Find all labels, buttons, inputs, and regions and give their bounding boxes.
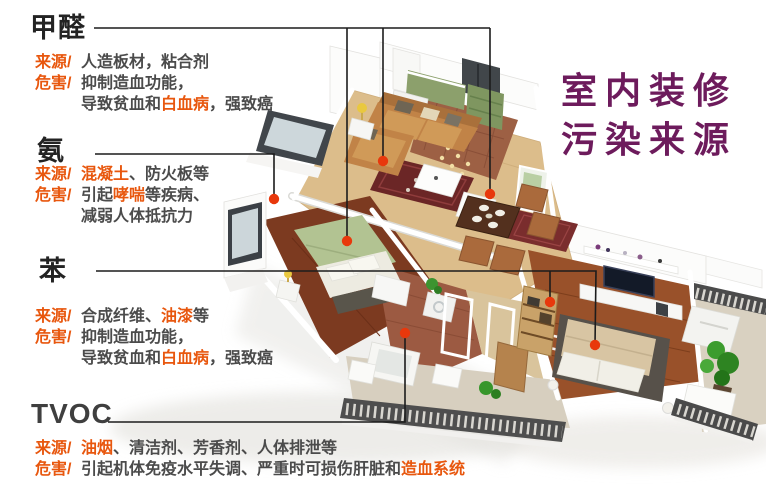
highlighted-term: 哮喘	[113, 187, 145, 204]
callout-row-text: 合成纤维、油漆等	[81, 306, 209, 327]
callout-row: 危害/抑制造血功能，	[35, 327, 273, 348]
text-segment: 、清洁剂、芳香剂、人体排泄等	[113, 440, 337, 457]
callout-row-text: 减弱人体抵抗力	[81, 206, 193, 227]
callout-row-label: 来源/	[35, 164, 81, 185]
text-segment: 等疾病、	[145, 187, 209, 204]
highlighted-term: 白血病	[161, 96, 209, 113]
callout-row-text: 抑制造血功能，	[81, 73, 193, 94]
callout-rows-formaldehyde: 来源/人造板材，粘合剂危害/抑制造血功能，导致贫血和白血病，强致癌	[35, 52, 273, 115]
ball-lamp	[663, 403, 674, 414]
text-segment: 减弱人体抵抗力	[81, 208, 193, 225]
callout-row-text: 混凝土、防火板等	[81, 164, 209, 185]
callout-row-label: 危害/	[35, 459, 81, 480]
callout-title-tvoc: TVOC	[31, 398, 113, 430]
callout-row-text: 引起哮喘等疾病、	[81, 185, 209, 206]
highlighted-term: 混凝土	[81, 166, 129, 183]
callout-row-label	[35, 206, 81, 227]
callout-row-label: 危害/	[35, 73, 81, 94]
callout-rows-benzene: 来源/合成纤维、油漆等危害/抑制造血功能，导致贫血和白血病，强致癌	[35, 306, 273, 369]
callout-title-ammonia: 氨	[37, 129, 65, 168]
callout-row-text: 引起机体免疫水平失调、严重时可损伤肝脏和造血系统	[81, 459, 465, 480]
ball-lamp	[548, 380, 558, 390]
text-segment: 抑制造血功能，	[81, 75, 193, 92]
text-segment: 等	[193, 308, 209, 325]
callout-row-label: 来源/	[35, 438, 81, 459]
callout-row-text: 导致贫血和白血病，强致癌	[81, 94, 273, 115]
callout-row: 来源/油烟、清洁剂、芳香剂、人体排泄等	[35, 438, 465, 459]
text-segment: 导致贫血和	[81, 350, 161, 367]
infographic-canvas: 甲醛 来源/人造板材，粘合剂危害/抑制造血功能，导致贫血和白血病，强致癌 氨 来…	[0, 0, 766, 489]
main-title-line1: 室内装修	[561, 66, 737, 115]
main-title: 室内装修 污染来源	[561, 66, 737, 164]
text-segment: 、防火板等	[129, 166, 209, 183]
highlighted-term: 白血病	[161, 350, 209, 367]
callout-title-benzene: 苯	[39, 249, 67, 288]
text-segment: 人造板材，粘合剂	[81, 54, 209, 71]
callout-row-text: 油烟、清洁剂、芳香剂、人体排泄等	[81, 438, 337, 459]
window-glass	[232, 208, 258, 259]
dining-chair	[490, 245, 525, 275]
callout-row-text: 导致贫血和白血病，强致癌	[81, 348, 273, 369]
text-segment: 引起	[81, 187, 113, 204]
callout-row: 导致贫血和白血病，强致癌	[35, 94, 273, 115]
callout-row-text: 抑制造血功能，	[81, 327, 193, 348]
callout-row: 来源/人造板材，粘合剂	[35, 52, 273, 73]
callout-title-formaldehyde: 甲醛	[30, 6, 86, 45]
text-segment: 抑制造血功能，	[81, 329, 193, 346]
lamp	[284, 270, 292, 278]
callout-row-label	[35, 94, 81, 115]
callout-row: 危害/引起哮喘等疾病、	[35, 185, 209, 206]
callout-row: 来源/合成纤维、油漆等	[35, 306, 273, 327]
highlighted-term: 油烟	[81, 440, 113, 457]
dining-chair	[459, 236, 494, 266]
text-segment: 导致贫血和	[81, 96, 161, 113]
callout-row-text: 人造板材，粘合剂	[81, 52, 209, 73]
callout-row-label: 危害/	[35, 327, 81, 348]
text-segment: 引起机体免疫水平失调、严重时可损伤肝脏和	[81, 461, 401, 478]
callout-row: 导致贫血和白血病，强致癌	[35, 348, 273, 369]
callout-row-label: 来源/	[35, 306, 81, 327]
main-title-line2: 污染来源	[561, 115, 737, 164]
callout-row: 危害/引起机体免疫水平失调、严重时可损伤肝脏和造血系统	[35, 459, 465, 480]
text-segment: ，强致癌	[209, 96, 273, 113]
callout-rows-tvoc: 来源/油烟、清洁剂、芳香剂、人体排泄等危害/引起机体免疫水平失调、严重时可损伤肝…	[35, 438, 465, 480]
highlighted-term: 造血系统	[401, 461, 465, 478]
callout-row: 减弱人体抵抗力	[35, 206, 209, 227]
text-segment: 合成纤维、	[81, 308, 161, 325]
highlighted-term: 油漆	[161, 308, 193, 325]
callout-row-label: 危害/	[35, 185, 81, 206]
callout-row-label	[35, 348, 81, 369]
text-segment: ，强致癌	[209, 350, 273, 367]
callout-rows-ammonia: 来源/混凝土、防火板等危害/引起哮喘等疾病、减弱人体抵抗力	[35, 164, 209, 227]
callout-row-label: 来源/	[35, 52, 81, 73]
lamp	[357, 103, 367, 113]
callout-row: 危害/抑制造血功能，	[35, 73, 273, 94]
callout-row: 来源/混凝土、防火板等	[35, 164, 209, 185]
